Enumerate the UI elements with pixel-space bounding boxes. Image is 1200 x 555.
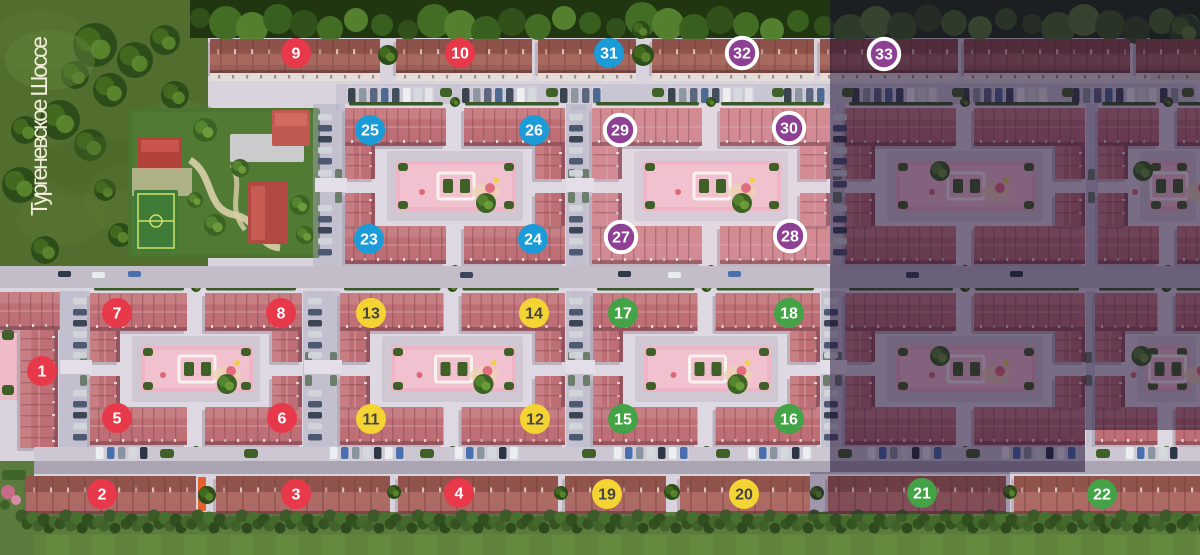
svg-text:7: 7	[113, 306, 122, 323]
svg-text:22: 22	[1093, 487, 1111, 504]
svg-text:26: 26	[525, 123, 543, 140]
svg-text:2: 2	[98, 487, 107, 504]
svg-text:23: 23	[360, 232, 378, 249]
svg-text:31: 31	[600, 46, 618, 63]
svg-text:10: 10	[451, 46, 469, 63]
svg-text:32: 32	[733, 46, 751, 63]
svg-text:9: 9	[292, 46, 301, 63]
svg-text:24: 24	[524, 232, 542, 249]
svg-text:33: 33	[875, 47, 893, 64]
svg-text:11: 11	[363, 412, 380, 429]
svg-text:8: 8	[277, 306, 286, 323]
svg-text:25: 25	[361, 123, 379, 140]
svg-text:28: 28	[781, 229, 799, 246]
svg-text:4: 4	[455, 486, 464, 503]
svg-text:13: 13	[362, 306, 380, 323]
svg-text:27: 27	[612, 230, 630, 247]
svg-text:16: 16	[780, 412, 798, 429]
svg-text:1: 1	[38, 364, 47, 381]
svg-text:14: 14	[525, 306, 543, 323]
svg-text:30: 30	[780, 121, 798, 138]
svg-text:3: 3	[292, 487, 301, 504]
svg-text:15: 15	[614, 412, 632, 429]
svg-text:Тургеневское Шоссе: Тургеневское Шоссе	[26, 36, 52, 216]
svg-text:6: 6	[278, 411, 287, 428]
svg-text:19: 19	[598, 487, 616, 504]
svg-text:20: 20	[735, 487, 753, 504]
svg-text:21: 21	[913, 486, 931, 503]
svg-text:12: 12	[526, 412, 544, 429]
svg-text:17: 17	[614, 306, 632, 323]
svg-text:29: 29	[611, 123, 629, 140]
svg-text:5: 5	[113, 411, 122, 428]
svg-text:18: 18	[780, 306, 798, 323]
